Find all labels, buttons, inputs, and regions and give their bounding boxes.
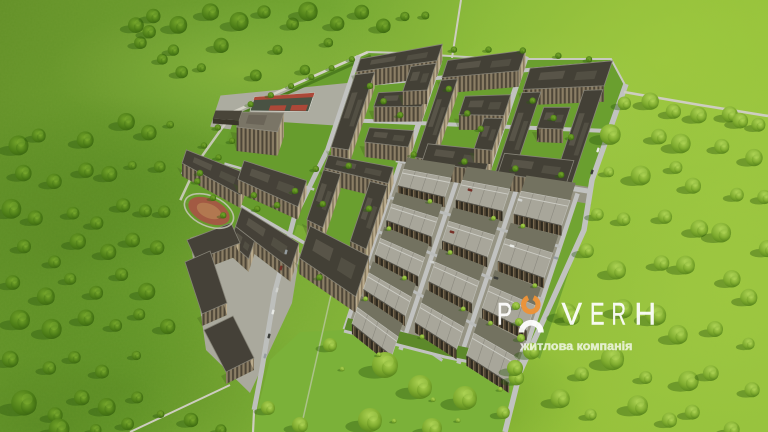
svg-text:E: E	[590, 296, 605, 332]
svg-text:житлова компанія: житлова компанія	[519, 339, 632, 353]
svg-text:V: V	[562, 296, 583, 332]
svg-text:P: P	[497, 296, 512, 332]
svg-text:H: H	[635, 296, 657, 332]
svg-text:R: R	[612, 296, 627, 332]
